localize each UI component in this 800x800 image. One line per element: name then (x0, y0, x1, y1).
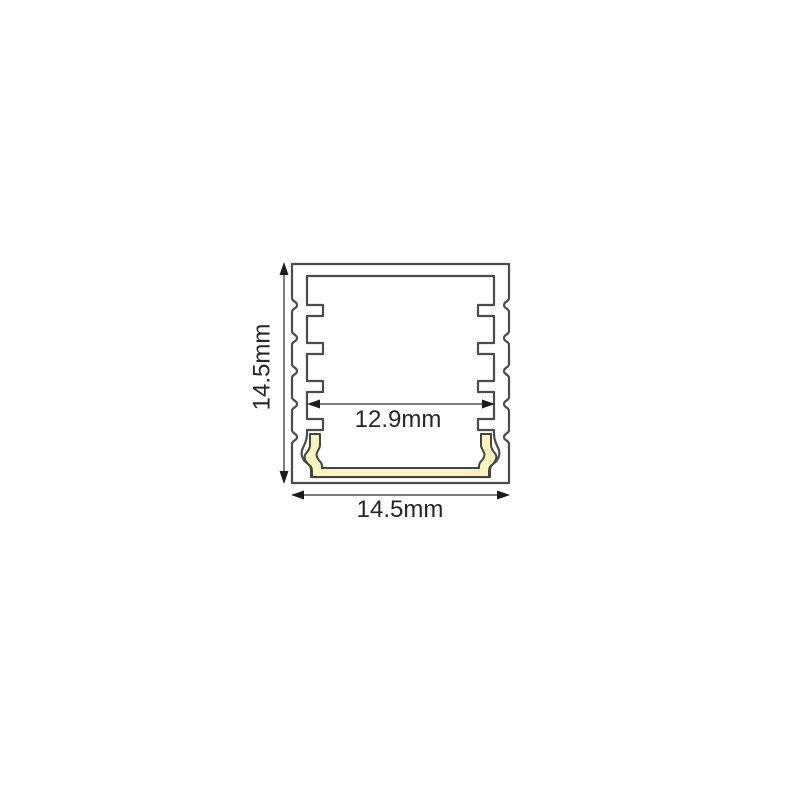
arrow-right-head (497, 491, 510, 500)
height-dimension: 14.5mm (249, 262, 289, 484)
width-dimension: 14.5mm (291, 491, 510, 524)
aluminium-profile (292, 264, 509, 483)
arrow-down-head (280, 471, 289, 484)
inner-width-dimension-label: 12.9mm (355, 406, 442, 433)
arrow-up-head (280, 262, 289, 275)
drawing-canvas: 14.5mm 12.9mm 14.5mm (0, 0, 800, 800)
width-dimension-label: 14.5mm (357, 496, 444, 523)
profile-cross-section-drawing: 14.5mm 12.9mm 14.5mm (0, 0, 800, 800)
height-dimension-label: 14.5mm (249, 324, 276, 411)
profile-cavity-contour (302, 276, 500, 477)
arrow-left-head (291, 491, 304, 500)
